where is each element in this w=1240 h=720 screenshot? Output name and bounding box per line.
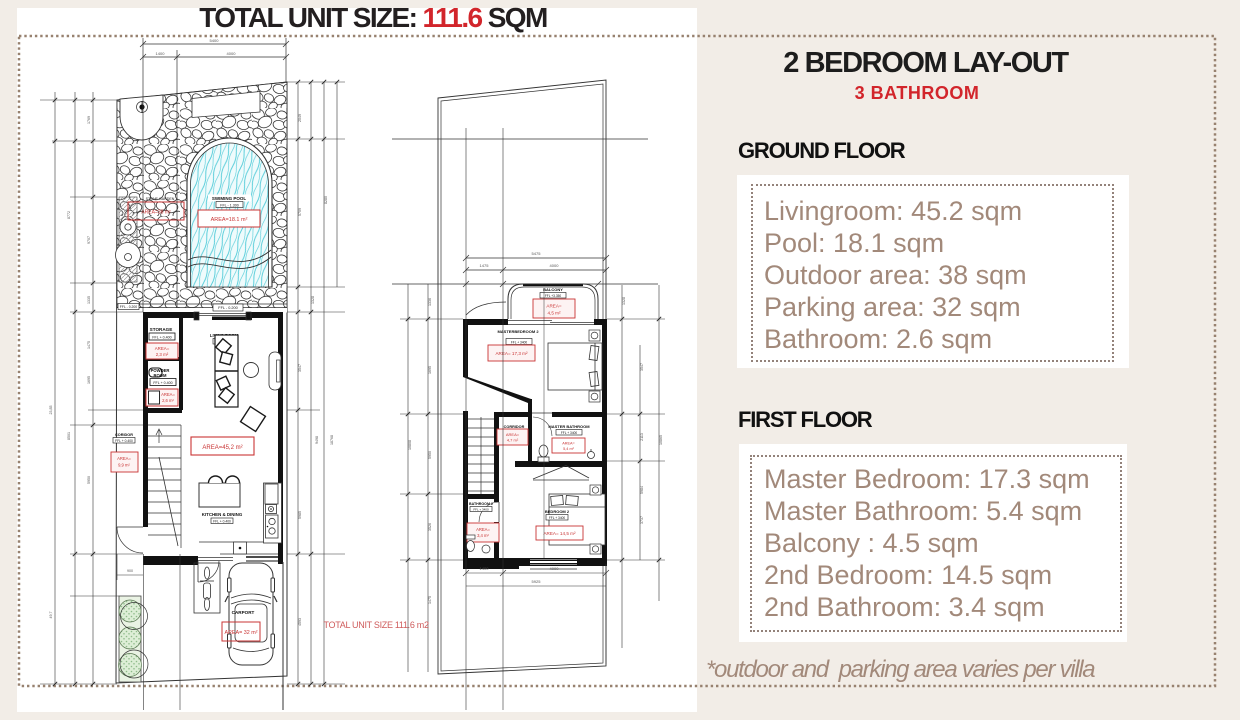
svg-text:10865: 10865 [659, 435, 663, 445]
svg-text:3,4 m²: 3,4 m² [477, 533, 489, 538]
svg-text:AREA= 14,5 m²: AREA= 14,5 m² [543, 531, 576, 536]
svg-text:KITCHEN & DINING: KITCHEN & DINING [202, 512, 243, 517]
svg-text:AREA=: AREA= [476, 527, 490, 532]
svg-text:FFL +3.350: FFL +3.350 [545, 294, 561, 298]
svg-text:2049: 2049 [298, 114, 302, 122]
svg-text:AREA=: AREA= [562, 442, 575, 446]
svg-text:4593: 4593 [298, 618, 302, 626]
svg-text:STORAGE: STORAGE [150, 327, 173, 332]
svg-text:1695: 1695 [87, 376, 91, 384]
svg-text:STONE GARDEN: STONE GARDEN [146, 197, 175, 201]
svg-text:5709: 5709 [298, 208, 302, 216]
svg-text:3547: 3547 [640, 363, 644, 371]
svg-text:AREA=18.1 m²: AREA=18.1 m² [211, 217, 248, 223]
svg-text:8501: 8501 [67, 432, 71, 440]
svg-text:1328: 1328 [622, 297, 626, 305]
svg-text:BATHROOM 2: BATHROOM 2 [469, 502, 493, 506]
svg-text:BEDROOM 2: BEDROOM 2 [545, 509, 570, 514]
svg-text:1336: 1336 [428, 298, 432, 306]
svg-text:4000: 4000 [550, 263, 560, 268]
svg-text:1769: 1769 [87, 116, 91, 124]
svg-text:10808: 10808 [408, 440, 412, 450]
svg-text:18768: 18768 [330, 435, 334, 445]
svg-text:4000: 4000 [227, 51, 237, 56]
svg-text:9707: 9707 [87, 236, 91, 244]
svg-text:2,6 m²: 2,6 m² [162, 398, 174, 403]
svg-text:AREA= 17,3 m²: AREA= 17,3 m² [495, 351, 528, 356]
svg-text:FFL + 0.400: FFL + 0.400 [213, 519, 231, 523]
svg-text:9,9 m²: 9,9 m² [118, 463, 130, 468]
svg-text:FFL + 3400: FFL + 3400 [511, 340, 527, 344]
svg-text:1400: 1400 [480, 566, 490, 571]
svg-text:MASTER BATHROOM: MASTER BATHROOM [548, 424, 590, 429]
svg-text:3737: 3737 [640, 516, 644, 524]
svg-text:1400: 1400 [156, 51, 166, 56]
svg-text:5,4 m²: 5,4 m² [563, 447, 574, 451]
svg-text:4,5 m²: 4,5 m² [547, 311, 560, 316]
svg-text:1475: 1475 [428, 596, 432, 604]
svg-text:23,85: 23,85 [49, 406, 53, 415]
svg-text:1475: 1475 [480, 263, 490, 268]
svg-text:FFL + 0.400: FFL + 0.400 [152, 336, 171, 340]
svg-text:CORRIDOR: CORRIDOR [504, 425, 525, 429]
svg-text:3547: 3547 [298, 364, 302, 372]
svg-text:5984: 5984 [640, 486, 644, 494]
svg-text:TOTAL UNIT SIZE 111.6 m2: TOTAL UNIT SIZE 111.6 m2 [324, 620, 429, 630]
svg-text:5925: 5925 [532, 579, 542, 584]
svg-text:5950: 5950 [428, 451, 432, 459]
svg-text:AREA=: AREA= [155, 346, 170, 351]
svg-text:1335: 1335 [87, 296, 91, 304]
svg-text:5400: 5400 [210, 38, 220, 43]
svg-text:FFL + 3400: FFL + 3400 [561, 431, 577, 435]
svg-text:AREA=: AREA= [161, 392, 175, 397]
svg-text:2,3 m²: 2,3 m² [156, 352, 169, 357]
svg-text:AREA=: AREA= [546, 304, 562, 309]
svg-text:8280: 8280 [324, 196, 328, 204]
svg-text:2113: 2113 [640, 433, 644, 441]
svg-text:FFL - 0.200: FFL - 0.200 [120, 305, 138, 309]
svg-text:3526: 3526 [428, 523, 432, 531]
svg-text:AREA= 32 m²: AREA= 32 m² [224, 630, 257, 636]
svg-text:FFL + 0.400: FFL + 0.400 [115, 439, 133, 443]
svg-text:1328: 1328 [311, 296, 315, 304]
svg-text:900: 900 [127, 569, 133, 573]
svg-text:CORIDOR: CORIDOR [115, 433, 133, 437]
svg-text:4000: 4000 [550, 566, 560, 571]
svg-text:4,7 m²: 4,7 m² [507, 438, 519, 443]
svg-text:MASTERBEDROOM 2: MASTERBEDROOM 2 [497, 329, 539, 334]
svg-text:FFL - 1.300: FFL - 1.300 [220, 203, 238, 207]
svg-text:1475: 1475 [87, 341, 91, 349]
svg-text:FFL + 3400: FFL + 3400 [473, 508, 489, 512]
svg-text:AREA=45,2 m²: AREA=45,2 m² [202, 445, 242, 451]
svg-text:BALCONY: BALCONY [543, 287, 563, 292]
svg-text:FFL - 0.200: FFL - 0.200 [218, 306, 238, 310]
svg-text:49,7: 49,7 [49, 612, 53, 619]
svg-text:ROOM: ROOM [153, 373, 167, 378]
svg-text:5475: 5475 [532, 251, 542, 256]
svg-text:FFL + 3400: FFL + 3400 [549, 516, 565, 520]
svg-text:5950: 5950 [87, 476, 91, 484]
svg-text:AREA=: AREA= [506, 432, 520, 437]
svg-text:SWIMING POOL: SWIMING POOL [212, 196, 247, 201]
svg-text:9498: 9498 [315, 436, 319, 444]
svg-text:AREA=: AREA= [117, 456, 131, 461]
svg-text:1695: 1695 [428, 366, 432, 374]
svg-text:CARPORT: CARPORT [232, 610, 255, 615]
svg-text:AREA=38 m²: AREA=38 m² [141, 210, 171, 216]
svg-text:5985: 5985 [298, 511, 302, 519]
svg-text:FFL + 0.400: FFL + 0.400 [153, 381, 172, 385]
svg-text:8772: 8772 [67, 211, 71, 219]
